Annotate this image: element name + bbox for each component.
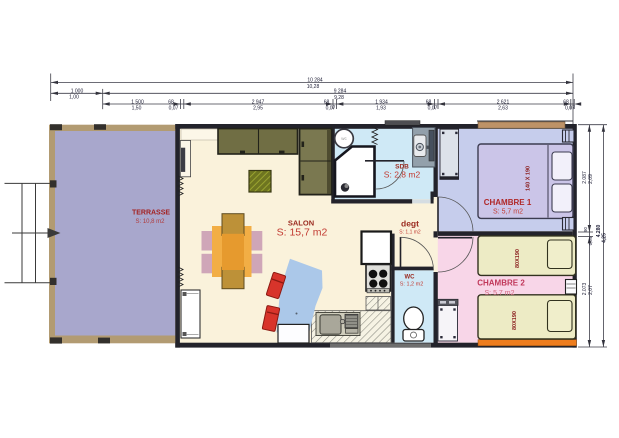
svg-text:0,07: 0,07 xyxy=(565,105,575,111)
svg-text:2 621: 2 621 xyxy=(497,99,510,105)
svg-text:68: 68 xyxy=(168,99,174,105)
svg-text:CHAMBRE 2: CHAMBRE 2 xyxy=(477,279,525,288)
svg-text:10,28: 10,28 xyxy=(307,84,320,90)
svg-text:S: 5,7 m2: S: 5,7 m2 xyxy=(485,290,515,297)
svg-text:4,25: 4,25 xyxy=(602,233,608,243)
svg-text:wc: wc xyxy=(341,136,347,141)
svg-text:TERRASSE: TERRASSE xyxy=(132,210,170,217)
svg-text:S: 15,7 m2: S: 15,7 m2 xyxy=(277,227,328,239)
svg-text:1 500: 1 500 xyxy=(131,99,144,105)
svg-text:WC: WC xyxy=(405,275,416,281)
svg-text:0,07: 0,07 xyxy=(326,105,336,111)
svg-text:68: 68 xyxy=(563,99,569,105)
svg-text:68: 68 xyxy=(426,99,432,105)
svg-text:degt: degt xyxy=(401,219,419,229)
svg-text:2,63: 2,63 xyxy=(498,105,508,111)
svg-text:S: 2,8 m2: S: 2,8 m2 xyxy=(384,170,421,180)
svg-text:2,95: 2,95 xyxy=(253,105,263,111)
svg-text:S: 5,7 m2: S: 5,7 m2 xyxy=(493,209,523,216)
svg-text:68: 68 xyxy=(324,99,330,105)
svg-text:80X190: 80X190 xyxy=(512,311,518,330)
svg-text:0,07: 0,07 xyxy=(428,105,438,111)
svg-text:S: 10,8 m2: S: 10,8 m2 xyxy=(135,219,165,225)
svg-text:S: 1,1 m2: S: 1,1 m2 xyxy=(399,230,421,236)
svg-text:2,09: 2,09 xyxy=(588,174,594,184)
svg-text:9,28: 9,28 xyxy=(334,95,344,101)
svg-text:1,50: 1,50 xyxy=(132,105,142,111)
svg-text:S: 1,2 m2: S: 1,2 m2 xyxy=(400,282,424,288)
svg-text:9 284: 9 284 xyxy=(334,89,347,95)
svg-text:90: 90 xyxy=(583,227,588,232)
svg-text:1 934: 1 934 xyxy=(375,99,388,105)
svg-text:80X190: 80X190 xyxy=(515,249,521,268)
svg-text:0,09: 0,09 xyxy=(588,236,593,245)
svg-text:140 X 190: 140 X 190 xyxy=(526,166,532,191)
svg-text:0,07: 0,07 xyxy=(169,105,179,111)
svg-text:2.073: 2.073 xyxy=(582,283,588,296)
svg-text:2,07: 2,07 xyxy=(588,285,594,295)
svg-text:2 947: 2 947 xyxy=(252,99,265,105)
svg-text:10 284: 10 284 xyxy=(307,78,323,84)
svg-text:CHAMBRE 1: CHAMBRE 1 xyxy=(484,198,532,207)
svg-text:2.087: 2.087 xyxy=(582,171,588,184)
svg-text:1,00: 1,00 xyxy=(69,95,79,101)
svg-text:1,93: 1,93 xyxy=(376,105,386,111)
